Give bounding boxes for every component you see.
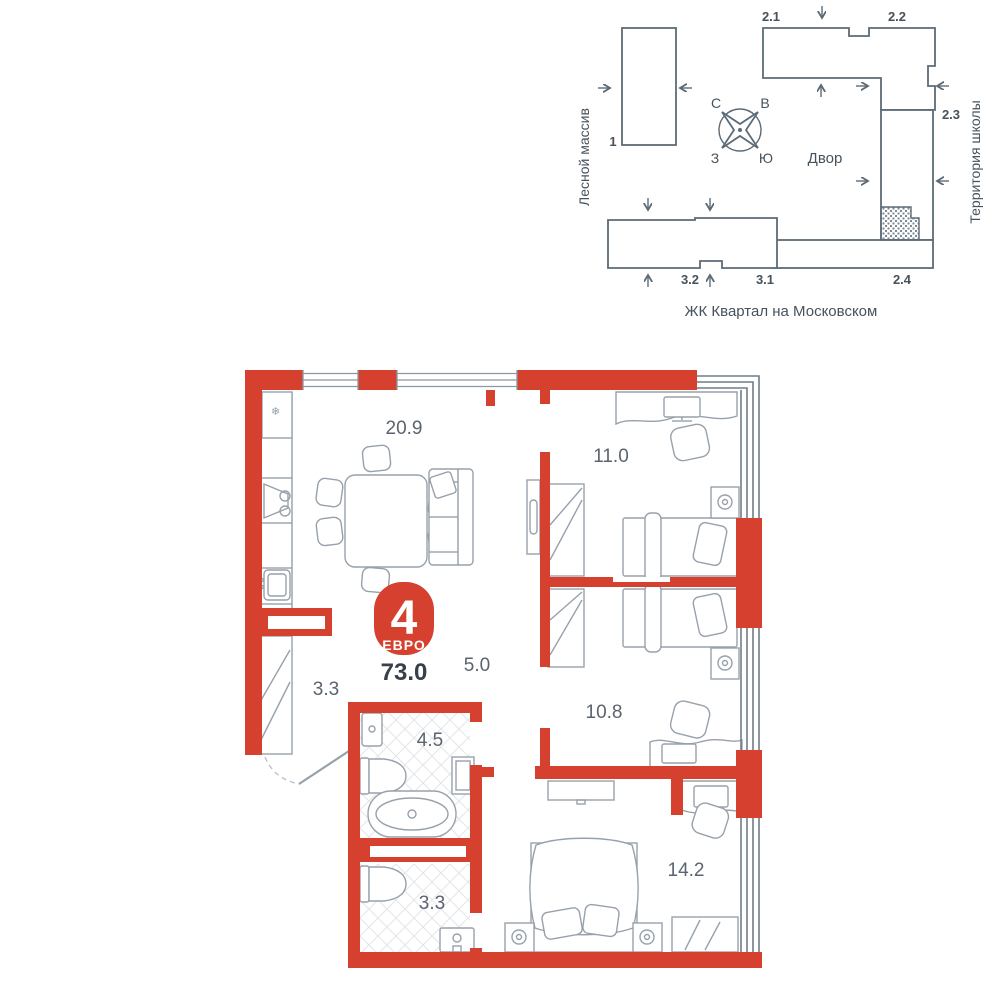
compass-icon: С В З Ю <box>711 95 773 166</box>
site-plan: С В З Ю 1 2.1 2.2 2.3 2.4 3.1 3.2 Двор Л… <box>576 6 983 320</box>
single-bed <box>623 584 737 652</box>
toilet <box>360 866 406 902</box>
dining-table <box>345 475 427 567</box>
washbasin <box>362 713 382 746</box>
compass-east: В <box>760 95 769 111</box>
bathtub <box>368 791 456 837</box>
badge-layout-type: ЕВРО <box>382 637 426 653</box>
plan-canvas: С В З Ю 1 2.1 2.2 2.3 2.4 3.1 3.2 Двор Л… <box>0 0 1000 1000</box>
monitor <box>664 397 700 421</box>
floor-plan: ❄ 20.9 11.0 5.0 3.3 4.5 10.8 3.3 14.2 4 … <box>245 370 762 968</box>
area-bedroom-3: 14.2 <box>668 860 705 881</box>
total-area: 73.0 <box>381 659 428 686</box>
compass-south: Ю <box>759 150 773 166</box>
label-building-24: 2.4 <box>893 272 912 287</box>
label-building-21: 2.1 <box>762 9 780 24</box>
area-hallway: 3.3 <box>313 679 339 700</box>
floorplan-page: С В З Ю 1 2.1 2.2 2.3 2.4 3.1 3.2 Двор Л… <box>0 0 1000 1000</box>
label-forest: Лесной массив <box>576 108 592 206</box>
floor-lamp <box>711 648 739 679</box>
window <box>303 370 358 390</box>
area-living-kitchen: 20.9 <box>386 418 423 439</box>
area-bathroom: 4.5 <box>417 730 443 751</box>
area-wc: 3.3 <box>419 893 445 914</box>
area-bedroom-2: 10.8 <box>586 702 623 723</box>
window-pier <box>736 518 762 628</box>
floor-lamp <box>711 487 739 518</box>
sofa <box>429 469 473 565</box>
bedroom3-furniture <box>505 781 740 952</box>
kitchen-counter <box>261 392 293 610</box>
kitchen-sink <box>261 570 291 600</box>
chair <box>362 445 391 473</box>
chair <box>315 477 344 507</box>
stove <box>264 484 290 518</box>
hallway-furniture <box>258 636 352 784</box>
bedroom2-furniture <box>548 584 742 768</box>
desk-chair <box>669 423 711 463</box>
blanket <box>645 513 661 581</box>
dresser <box>548 781 614 800</box>
area-corridor: 5.0 <box>464 655 490 676</box>
label-building-32: 3.2 <box>681 272 699 287</box>
label-building-31: 3.1 <box>756 272 774 287</box>
site-building-3-1-3-2 <box>608 218 777 268</box>
window-pier <box>736 750 762 818</box>
label-courtyard: Двор <box>808 150 843 167</box>
window <box>397 370 517 390</box>
area-bedroom-1: 11.0 <box>593 446 629 467</box>
label-building-23: 2.3 <box>942 107 960 122</box>
floor-lamp <box>633 923 662 952</box>
label-school: Территория школы <box>967 100 983 223</box>
wardrobe <box>672 917 738 952</box>
fridge-snowflake-icon: ❄ <box>271 405 280 418</box>
compass-north: С <box>711 95 721 111</box>
apartment-badge: 4 ЕВРО <box>374 582 434 655</box>
site-building-2-4 <box>773 240 933 268</box>
pillow <box>541 907 583 940</box>
floor-lamp <box>505 923 534 952</box>
site-building-2-1-2-2 <box>763 28 935 110</box>
label-complex-name: ЖК Квартал на Московском <box>685 303 878 320</box>
corridor-mirror <box>527 480 540 554</box>
desk-chair <box>669 699 712 740</box>
blanket <box>645 584 661 652</box>
toilet <box>360 758 406 794</box>
chair <box>316 517 344 547</box>
wc-sink <box>440 928 474 952</box>
bedroom1-furniture <box>527 392 739 581</box>
site-building-1 <box>622 28 676 145</box>
label-building-1: 1 <box>609 134 616 149</box>
label-building-22: 2.2 <box>888 9 906 24</box>
hall-partition <box>260 608 332 636</box>
double-bed <box>530 838 638 952</box>
pillow <box>582 904 620 937</box>
compass-west: З <box>711 150 719 166</box>
monitor <box>662 744 696 763</box>
single-bed <box>623 513 737 581</box>
